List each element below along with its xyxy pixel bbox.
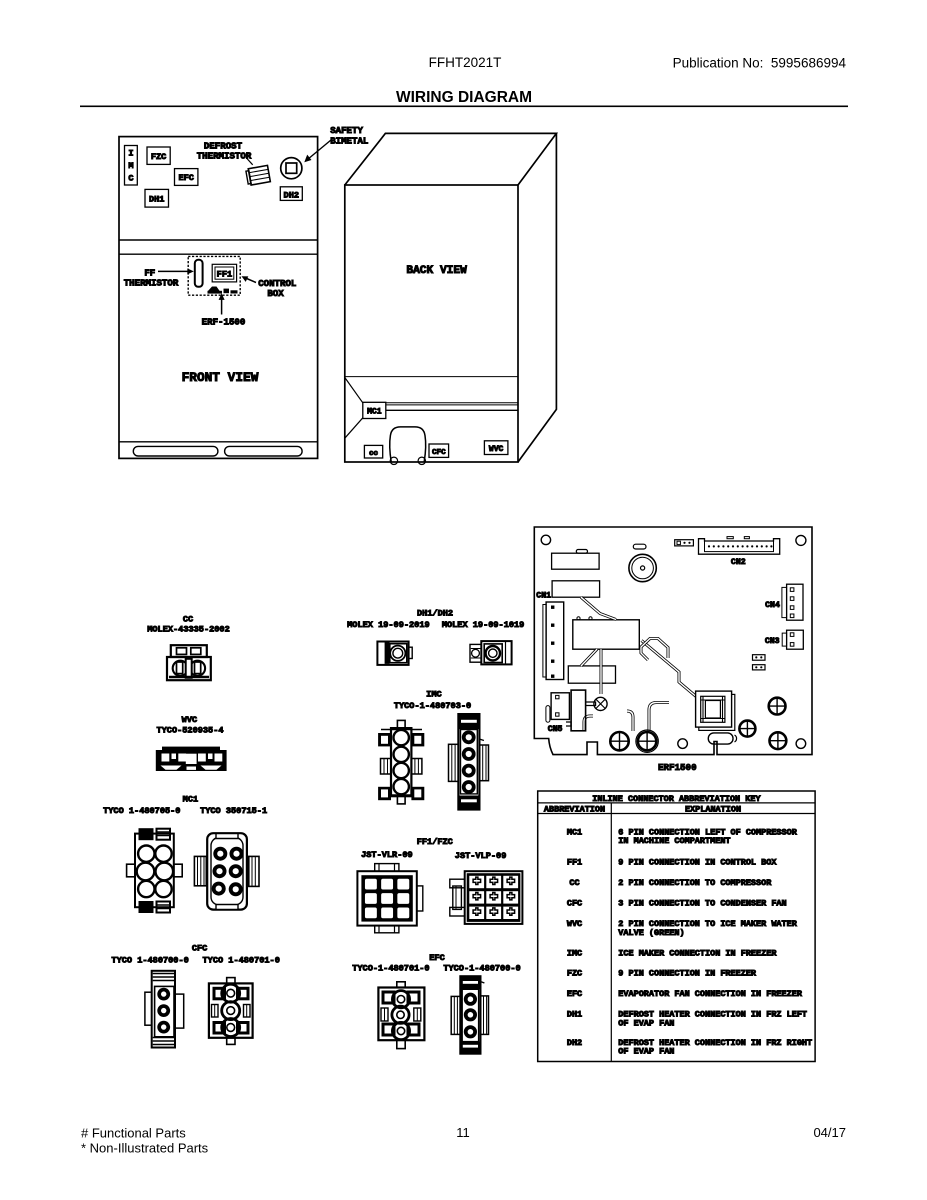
svg-text:BOX: BOX: [267, 288, 284, 299]
svg-text:OF EVAP FAN: OF EVAP FAN: [618, 1018, 674, 1028]
svg-text:# Functional Parts: # Functional Parts: [81, 1126, 186, 1141]
svg-text:FF1: FF1: [217, 270, 232, 280]
svg-text:THERMISTOR: THERMISTOR: [197, 151, 252, 162]
svg-text:BIMETAL: BIMETAL: [330, 136, 368, 147]
svg-text:ERF-1500: ERF-1500: [202, 317, 246, 328]
svg-text:Publication No: 5995686994: Publication No: 5995686994: [673, 56, 847, 71]
svg-text:TYCO 1-480700-0: TYCO 1-480700-0: [111, 956, 188, 966]
svg-text:MC1: MC1: [183, 795, 198, 805]
svg-text:9 PIN CONNECTION IN FREEZER: 9 PIN CONNECTION IN FREEZER: [618, 969, 757, 979]
svg-text:CFC: CFC: [567, 899, 582, 909]
svg-text:FF1/FZC: FF1/FZC: [417, 837, 453, 847]
svg-text:ABBREVIATION: ABBREVIATION: [544, 805, 605, 815]
svg-text:04/17: 04/17: [813, 1125, 846, 1140]
svg-text:I: I: [128, 149, 133, 159]
svg-text:cc: cc: [369, 450, 379, 458]
svg-text:IN MACHINE COMPARTMENT: IN MACHINE COMPARTMENT: [618, 836, 730, 846]
svg-text:DH1: DH1: [149, 194, 164, 204]
svg-text:MC1: MC1: [567, 827, 582, 837]
svg-text:CC: CC: [183, 614, 193, 624]
svg-text:MOLEX 19-09-2019: MOLEX 19-09-2019: [347, 620, 430, 630]
svg-text:VALVE (GREEN): VALVE (GREEN): [618, 928, 684, 938]
svg-text:JST-VLP-09: JST-VLP-09: [455, 851, 507, 861]
svg-text:SAFETY: SAFETY: [330, 125, 363, 136]
svg-text:TYCO-1-480701-0: TYCO-1-480701-0: [352, 964, 429, 974]
svg-text:C: C: [128, 174, 133, 184]
svg-text:EXPLANATION: EXPLANATION: [685, 805, 741, 815]
svg-text:CN3: CN3: [765, 637, 780, 646]
svg-text:CN4: CN4: [765, 601, 780, 610]
svg-text:OF EVAP FAN: OF EVAP FAN: [618, 1047, 674, 1057]
svg-text:THERMISTOR: THERMISTOR: [124, 277, 179, 288]
svg-text:IMC: IMC: [426, 690, 441, 700]
svg-text:FF1: FF1: [567, 858, 582, 868]
svg-text:MOLEX 19-09-1019: MOLEX 19-09-1019: [442, 620, 525, 630]
svg-text:EFC: EFC: [178, 173, 193, 183]
svg-text:FZC: FZC: [151, 152, 166, 162]
svg-text:TYCO 1-480705-0: TYCO 1-480705-0: [103, 806, 180, 816]
svg-text:2 PIN CONNECTION TO COMPRESSOR: 2 PIN CONNECTION TO COMPRESSOR: [618, 878, 772, 888]
svg-text:INLINE CONNECTOR ABBREVIATION: INLINE CONNECTOR ABBREVIATION KEY: [592, 794, 761, 804]
svg-text:ICE MAKER CONNECTION IN FREEZE: ICE MAKER CONNECTION IN FREEZER: [618, 949, 777, 959]
svg-text:EFC: EFC: [429, 953, 444, 963]
svg-text:DH2: DH2: [284, 190, 299, 200]
svg-text:TYCO-1-480703-0: TYCO-1-480703-0: [394, 701, 471, 711]
svg-text:ERF1500: ERF1500: [658, 762, 697, 773]
svg-text:DH1: DH1: [567, 1010, 582, 1020]
svg-text:TYCO-1-480700-0: TYCO-1-480700-0: [443, 964, 520, 974]
svg-text:CN2: CN2: [731, 558, 746, 567]
svg-text:JST-VLR-09: JST-VLR-09: [361, 850, 413, 860]
svg-text:FRONT VIEW: FRONT VIEW: [182, 370, 259, 385]
svg-text:DH1/DH2: DH1/DH2: [417, 608, 453, 618]
svg-text:WVC: WVC: [489, 445, 504, 454]
svg-text:IMC: IMC: [567, 949, 582, 959]
svg-text:TYCO 1-480701-0: TYCO 1-480701-0: [203, 956, 280, 966]
svg-text:MOLEX-43335-2002: MOLEX-43335-2002: [147, 625, 230, 635]
svg-text:WVC: WVC: [182, 715, 197, 725]
svg-text:CFC: CFC: [432, 449, 446, 457]
svg-text:* Non-Illustrated Parts: * Non-Illustrated Parts: [81, 1141, 209, 1156]
svg-text:9 PIN CONNECTION IN CONTROL BO: 9 PIN CONNECTION IN CONTROL BOX: [618, 858, 777, 868]
svg-text:11: 11: [456, 1125, 470, 1140]
svg-text:EVAPORATOR FAN CONNECTION IN F: EVAPORATOR FAN CONNECTION IN FREEZER: [618, 989, 803, 999]
svg-text:M: M: [128, 161, 133, 171]
svg-text:WIRING DIAGRAM: WIRING DIAGRAM: [396, 89, 532, 106]
svg-text:CC: CC: [569, 878, 579, 888]
svg-text:TYCO 350715-1: TYCO 350715-1: [200, 806, 267, 816]
svg-text:FZC: FZC: [567, 969, 582, 979]
svg-text:DH2: DH2: [567, 1038, 582, 1048]
svg-text:CFC: CFC: [192, 943, 207, 953]
svg-text:CN1: CN1: [536, 592, 551, 601]
svg-text:MC1: MC1: [367, 407, 382, 416]
svg-text:BACK VIEW: BACK VIEW: [406, 265, 467, 277]
svg-text:FFHT2021T: FFHT2021T: [429, 55, 502, 70]
svg-text:EFC: EFC: [567, 989, 582, 999]
svg-text:TYCO-520935-4: TYCO-520935-4: [156, 725, 223, 735]
svg-text:WVC: WVC: [567, 919, 582, 929]
svg-text:3 PIN CONNECTION TO CONDENSER: 3 PIN CONNECTION TO CONDENSER FAN: [618, 899, 786, 909]
svg-text:CN5: CN5: [548, 725, 563, 734]
